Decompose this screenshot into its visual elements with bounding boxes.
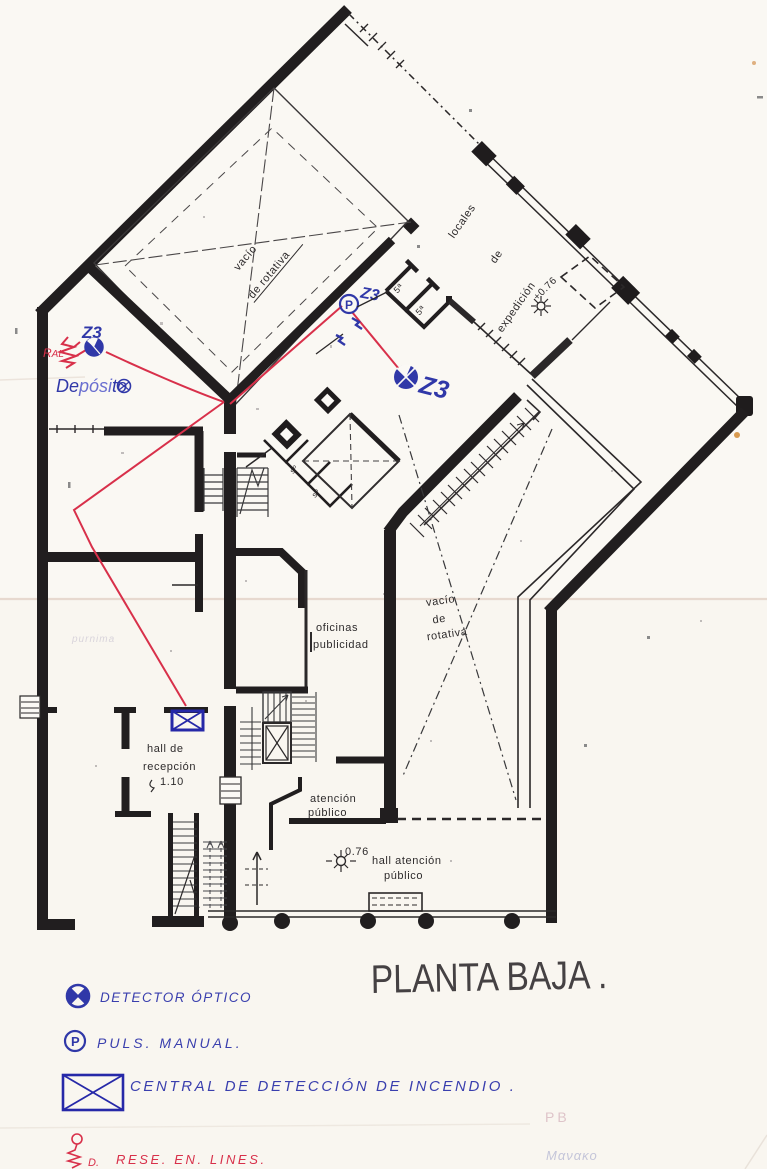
svg-text:P: P	[345, 298, 353, 312]
svg-text:atención: atención	[310, 793, 356, 805]
svg-text:oficinas: oficinas	[316, 622, 358, 634]
svg-text:DETECTOR ÓPTICO: DETECTOR ÓPTICO	[100, 990, 252, 1005]
svg-text:Depósito: Depósito	[56, 376, 127, 396]
svg-text:D.: D.	[88, 1157, 99, 1169]
svg-text:Z3: Z3	[358, 285, 380, 305]
svg-text:PULS. MANUAL.: PULS. MANUAL.	[97, 1035, 243, 1051]
svg-text:público: público	[384, 870, 423, 882]
svg-text:RAL: RAL	[43, 346, 64, 360]
svg-text:CENTRAL DE DETECCIÓN DE INCEND: CENTRAL DE DETECCIÓN DE INCENDIO .	[130, 1078, 517, 1095]
svg-text:hall de: hall de	[147, 743, 184, 755]
svg-text:PLANTA BAJA .: PLANTA BAJA .	[370, 952, 607, 1001]
svg-text:recepción: recepción	[143, 761, 196, 773]
svg-text:hall atención: hall atención	[372, 855, 442, 867]
svg-text:1.10: 1.10	[160, 776, 184, 788]
svg-text:purnima: purnima	[71, 634, 115, 645]
svg-text:P: P	[71, 1034, 80, 1049]
svg-text:de: de	[432, 613, 447, 627]
svg-text:RESE. EN. LINES.: RESE. EN. LINES.	[116, 1152, 267, 1167]
svg-text:publicidad: publicidad	[313, 639, 369, 651]
svg-text:público: público	[308, 807, 347, 819]
svg-text:Mανακο: Mανακο	[546, 1148, 598, 1163]
svg-text:PB: PB	[545, 1109, 570, 1125]
svg-text:0.76: 0.76	[345, 846, 369, 858]
